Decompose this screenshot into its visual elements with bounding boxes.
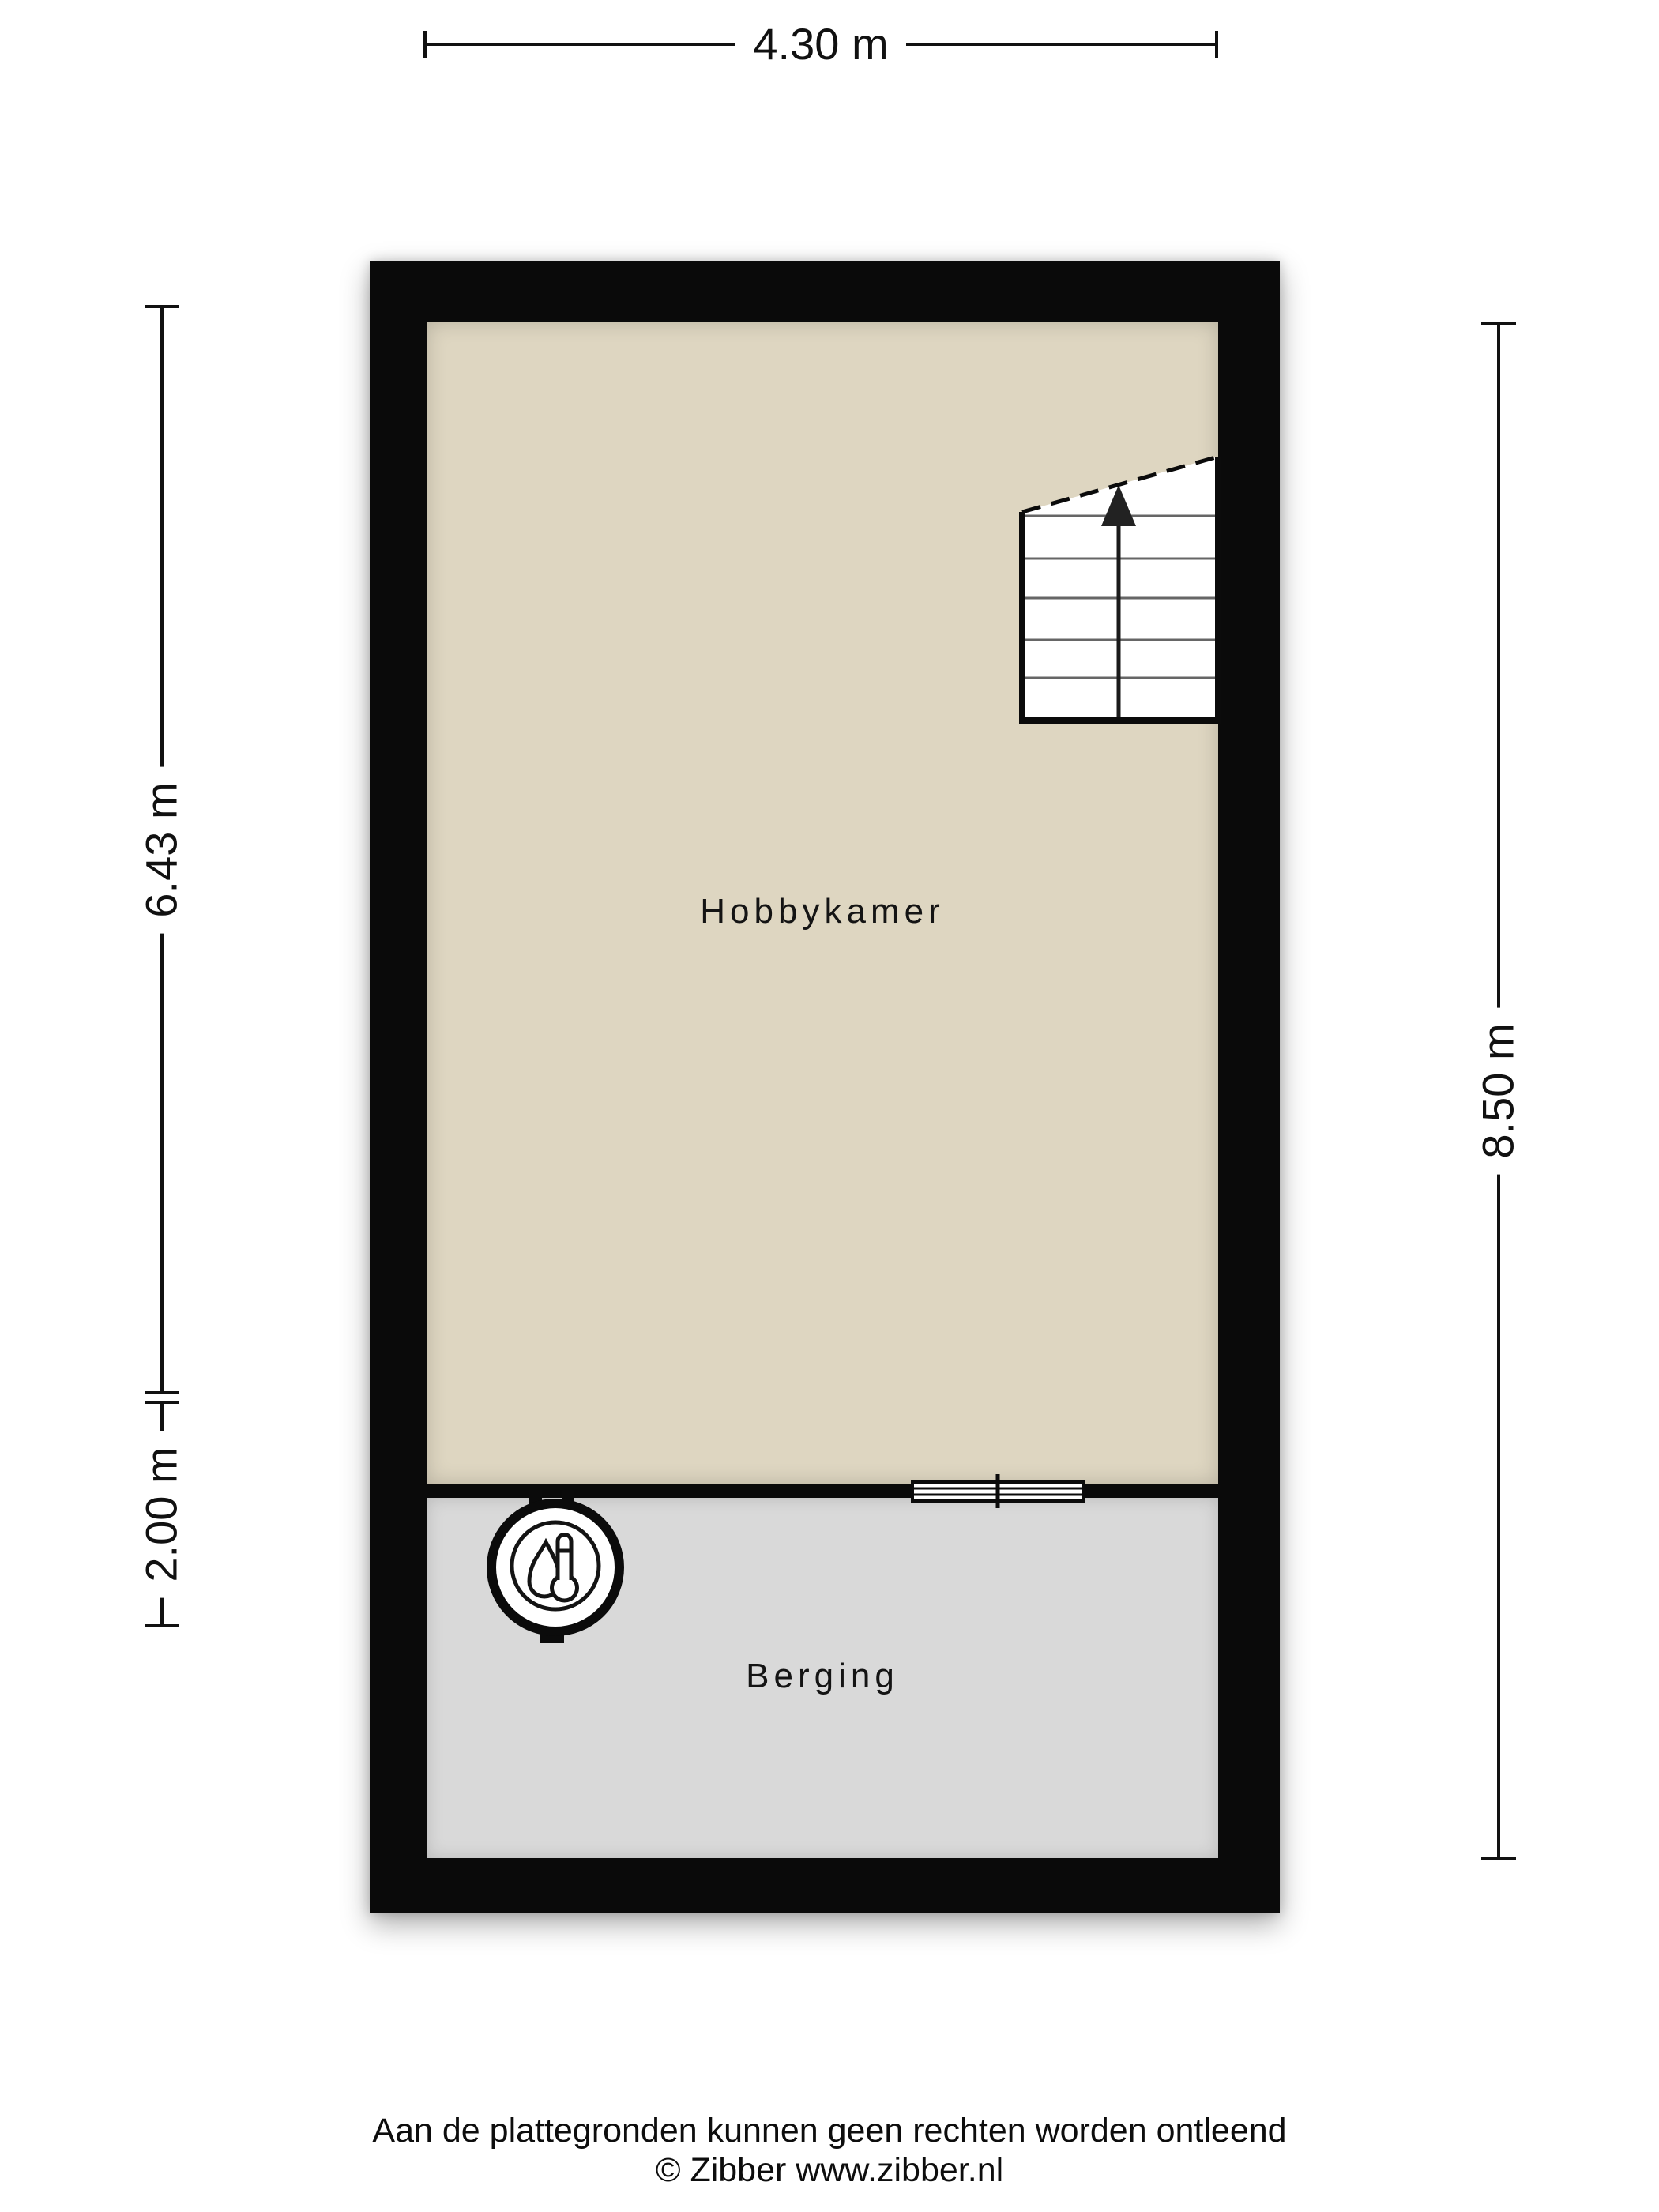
dimension-left-lower: 2.00 m [137, 1402, 186, 1626]
dimension-left-upper: 6.43 m [137, 307, 186, 1393]
dimension-right: 8.50 m [1474, 324, 1523, 1858]
dimension-top-label: 4.30 m [735, 22, 905, 66]
copyright-text: © Zibber www.zibber.nl [0, 2150, 1659, 2190]
dimension-left-lower-label: 2.00 m [140, 1431, 184, 1597]
window-symbol [911, 1471, 1085, 1509]
thermometer-icon [558, 1535, 571, 1581]
room-label-berging: Berging [427, 1659, 1218, 1694]
dimension-top: 4.30 m [425, 20, 1217, 69]
boiler-icon [480, 1487, 630, 1653]
staircase-up-arrow-icon [1022, 457, 1218, 720]
footer: Aan de plattegronden kunnen geen rechten… [0, 2111, 1659, 2190]
floorplan-canvas: 4.30 m 6.43 m 2.00 m 8.50 m [0, 0, 1659, 2212]
disclaimer-text: Aan de plattegronden kunnen geen rechten… [0, 2111, 1659, 2150]
dimension-left-upper-label: 6.43 m [140, 766, 184, 933]
dimension-right-label: 8.50 m [1477, 1007, 1521, 1174]
room-label-hobbykamer: Hobbykamer [427, 894, 1218, 929]
